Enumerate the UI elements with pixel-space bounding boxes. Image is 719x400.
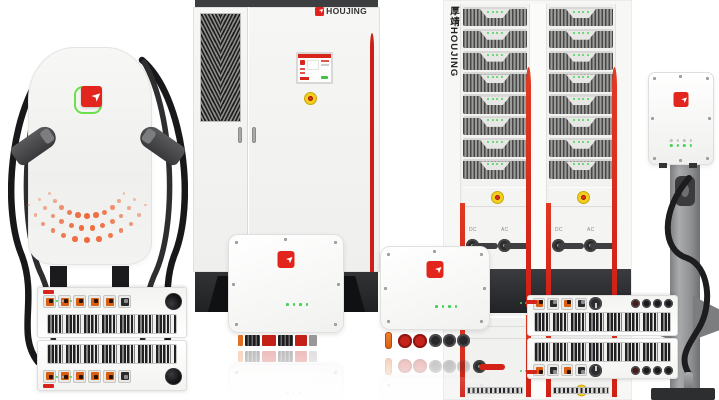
vent-chevron-right: [221, 14, 241, 121]
rack-power-module: [463, 138, 527, 157]
smile-dot: [127, 206, 131, 210]
wall-inverter-unit: ➤: [380, 246, 490, 352]
wall-inverter-unit: ➤: [228, 234, 344, 347]
screw-icon: [651, 117, 654, 120]
emergency-stop-button[interactable]: [304, 92, 317, 105]
smile-dot: [53, 199, 57, 203]
led-ticks: [670, 139, 692, 142]
power-connector[interactable]: [73, 296, 86, 309]
screw-icon: [384, 287, 387, 290]
switch-label: AC: [501, 227, 509, 233]
screen-chart: [307, 60, 319, 70]
screw-icon: [334, 241, 337, 244]
vent-grille: [467, 387, 523, 394]
screw-icon: [433, 250, 436, 253]
rack-power-module: [549, 29, 613, 48]
power-connector[interactable]: [561, 298, 573, 310]
red-accent-stripe: [546, 203, 551, 307]
inverter-panel: ➤: [228, 234, 344, 333]
signal-connector[interactable]: [118, 370, 131, 383]
screw-icon: [387, 320, 390, 323]
rack-power-module: [549, 159, 613, 178]
smile-dot: [48, 192, 51, 195]
rack-power-module: [549, 51, 613, 70]
rotary-switch-main[interactable]: [473, 356, 507, 378]
connector-row: [533, 363, 673, 377]
screen-header: [298, 54, 331, 58]
screen-button: [300, 77, 309, 80]
signal-connector[interactable]: [547, 364, 559, 376]
brand-logo-icon: ➤: [427, 261, 444, 278]
signal-terminal[interactable]: [457, 334, 470, 347]
fan-port: [165, 368, 182, 385]
terminal-block[interactable]: [278, 335, 293, 346]
smile-dot: [119, 228, 124, 233]
smile-dot: [123, 192, 126, 195]
wallbox-gland: [659, 163, 667, 168]
round-terminal[interactable]: [642, 300, 651, 309]
display-screen[interactable]: [296, 52, 333, 84]
smile-dot: [38, 198, 41, 201]
vent-grille: [47, 344, 177, 364]
wallbox-gland: [689, 163, 697, 168]
smile-dot: [84, 237, 90, 243]
smile-dot: [51, 214, 55, 218]
terminal-strip[interactable]: [238, 334, 334, 347]
smile-dot: [75, 212, 80, 217]
smile-dot: [72, 236, 78, 242]
smile-dot: [41, 222, 45, 226]
smile-dot: [59, 205, 63, 209]
screw-icon: [708, 117, 711, 120]
smile-dot: [117, 199, 121, 203]
houjing-badge: [526, 370, 537, 374]
signal-terminal[interactable]: [429, 334, 442, 347]
rack-power-module: [463, 72, 527, 91]
screw-icon: [387, 253, 390, 256]
switch-label: DC: [555, 227, 563, 233]
door-handle[interactable]: [238, 127, 242, 143]
round-terminal[interactable]: [631, 300, 640, 309]
terminal-block[interactable]: [245, 335, 260, 346]
smile-dot: [129, 222, 133, 226]
smile-dot: [79, 225, 85, 231]
smile-dot: [61, 233, 66, 238]
smile-dot: [96, 236, 102, 242]
smile-dot: [69, 223, 74, 228]
screw-icon: [235, 323, 238, 326]
adjust-knob[interactable]: [589, 298, 602, 311]
power-connector[interactable]: [73, 370, 86, 383]
screw-icon: [483, 287, 486, 290]
screen-row: [321, 60, 329, 62]
vent-chevron-left: [201, 14, 221, 121]
power-connector[interactable]: [58, 296, 71, 309]
smile-dot: [119, 214, 123, 218]
smile-dot: [84, 213, 90, 219]
round-terminal[interactable]: [664, 366, 673, 375]
rack-brand-label: 厚靖HOUJING: [446, 6, 460, 77]
smile-dot: [90, 225, 96, 231]
round-terminal[interactable]: [631, 366, 640, 375]
smile-dot: [110, 205, 114, 209]
power-connector[interactable]: [43, 296, 56, 309]
red-accent-stripe: [612, 67, 617, 307]
smile-dot: [110, 219, 115, 224]
rectifier-module: [527, 338, 678, 379]
emergency-stop-button[interactable]: [577, 191, 590, 204]
vent-grille: [200, 13, 241, 122]
houjing-badge: [526, 300, 537, 304]
rack-power-module: [463, 51, 527, 70]
power-connector[interactable]: [103, 296, 116, 309]
red-accent-stripe: [526, 67, 531, 307]
rack-estop-strip: [549, 187, 613, 207]
rack-switch-panel: DC AC: [549, 209, 613, 272]
smile-dot: [102, 210, 107, 215]
screw-icon: [334, 323, 337, 326]
rectifier-module: [37, 340, 187, 391]
rack-power-module: [463, 159, 527, 178]
rack-estop-strip: [463, 187, 527, 207]
red-accent-stripe: [370, 33, 374, 272]
houjing-badge: [43, 384, 54, 388]
signal-connector[interactable]: [118, 296, 131, 309]
pedestal-base: [651, 388, 715, 400]
screw-icon: [679, 75, 682, 78]
smile-dot: [59, 219, 64, 224]
door-handle[interactable]: [252, 127, 256, 143]
screw-icon: [480, 253, 483, 256]
smile-dot: [133, 198, 136, 201]
switch-label: DC: [469, 227, 477, 233]
rotary-handle: [479, 364, 505, 370]
vent-grille: [534, 342, 671, 362]
round-terminal[interactable]: [653, 366, 662, 375]
screw-icon: [232, 283, 235, 286]
rack-power-module: [549, 116, 613, 135]
rotary-handle: [558, 243, 584, 249]
rack-power-module: [549, 72, 613, 91]
rack-power-module: [549, 94, 613, 113]
status-leds: [670, 144, 692, 147]
brand-logo-icon: ➤: [674, 92, 689, 107]
brand-logo-text: HOUJING: [326, 6, 367, 16]
smile-dot: [34, 213, 38, 217]
houjing-badge: [43, 290, 54, 294]
rack-power-module: [463, 116, 527, 135]
connector-row: [43, 367, 182, 385]
smile-dot: [144, 204, 147, 207]
screw-icon: [706, 157, 709, 160]
rack-power-module: [549, 138, 613, 157]
screw-icon: [480, 320, 483, 323]
screw-icon: [653, 77, 656, 80]
terminal-block[interactable]: [238, 335, 243, 346]
switch-label: AC: [587, 227, 595, 233]
smile-dot: [100, 223, 105, 228]
connector-row: [43, 293, 182, 311]
screw-icon: [679, 159, 682, 162]
screw-icon: [653, 157, 656, 160]
screw-icon: [337, 283, 340, 286]
connector-row: [533, 297, 673, 311]
smile-dot: [51, 228, 56, 233]
round-terminal[interactable]: [653, 300, 662, 309]
screen-green-button: [321, 76, 328, 80]
rectifier-module: [37, 287, 187, 338]
smile-dot: [108, 233, 113, 238]
dc-terminal[interactable]: [398, 334, 412, 348]
terminal-block[interactable]: [262, 335, 276, 346]
adjust-knob[interactable]: [589, 364, 602, 377]
power-connector[interactable]: [561, 364, 573, 376]
power-module-pair: [37, 287, 187, 391]
signal-connector[interactable]: [575, 298, 587, 310]
vent-grille: [534, 312, 671, 332]
rack-power-module: [463, 7, 527, 26]
screen-row: [300, 72, 305, 74]
terminal-block[interactable]: [309, 335, 317, 346]
fan-port: [165, 294, 182, 311]
dc-terminal[interactable]: [413, 334, 427, 348]
signal-terminal[interactable]: [443, 334, 456, 347]
emergency-stop-button[interactable]: [491, 191, 504, 204]
door-seam: [247, 7, 248, 272]
rack-power-module: [549, 7, 613, 26]
product-collage: 厚靖HOUJING DC AC: [0, 0, 719, 400]
round-terminal[interactable]: [642, 366, 651, 375]
power-connector[interactable]: [88, 370, 101, 383]
terminal-block[interactable]: [295, 335, 307, 346]
rack-power-module: [463, 29, 527, 48]
power-connector[interactable]: [103, 370, 116, 383]
ac-terminal[interactable]: [385, 332, 392, 349]
power-module-pair: [527, 295, 678, 379]
smile-dot: [67, 210, 72, 215]
inverter-panel: ➤: [380, 246, 490, 330]
brand-logo-icon: ➤: [315, 7, 324, 16]
power-connector[interactable]: [88, 296, 101, 309]
vent-grille: [47, 314, 177, 334]
smile-dot: [27, 204, 30, 207]
rotary-switch-dc[interactable]: DC: [552, 235, 586, 257]
signal-connector[interactable]: [547, 298, 559, 310]
rectifier-module: [527, 295, 678, 336]
screen-row: [300, 68, 305, 70]
rack-power-module: [463, 94, 527, 113]
smile-dot: [137, 213, 141, 217]
screw-icon: [706, 77, 709, 80]
screen-row: [321, 64, 329, 66]
wallbox-charger: ➤: [648, 72, 714, 165]
brand-logo: ➤ HOUJING: [315, 6, 367, 16]
screen-logo: [300, 60, 305, 65]
vent-grille: [553, 387, 609, 394]
signal-connector[interactable]: [575, 364, 587, 376]
screw-icon: [284, 238, 287, 241]
smile-dot: [93, 212, 98, 217]
rack-module-stack: [549, 7, 613, 179]
screw-icon: [235, 241, 238, 244]
brand-logo-icon: ➤: [278, 251, 295, 268]
round-terminal[interactable]: [664, 300, 673, 309]
rack-module-stack: [463, 7, 527, 179]
smile-dot: [43, 206, 47, 210]
